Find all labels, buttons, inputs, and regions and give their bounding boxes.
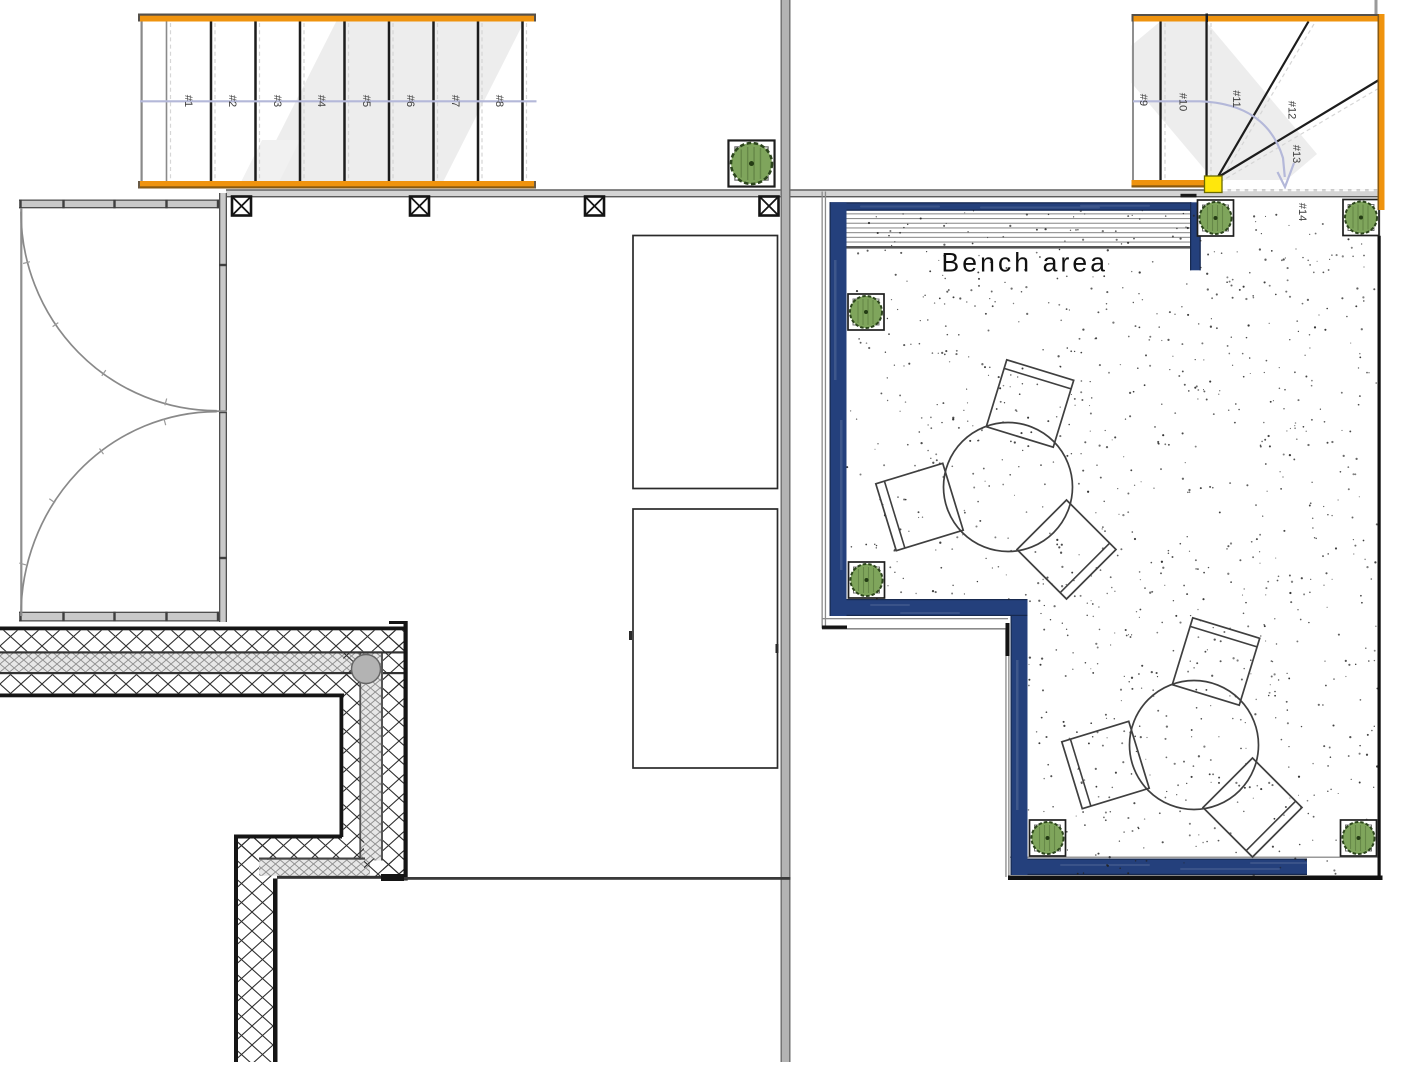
svg-text:#1: #1 <box>182 95 194 107</box>
svg-text:#14: #14 <box>1296 203 1308 221</box>
svg-text:Bench area: Bench area <box>942 248 1109 278</box>
svg-text:#13: #13 <box>1290 145 1302 163</box>
svg-text:#5: #5 <box>360 95 372 107</box>
svg-text:#6: #6 <box>404 95 416 107</box>
svg-text:#9: #9 <box>1137 94 1149 106</box>
svg-text:#10: #10 <box>1177 93 1189 111</box>
svg-text:#4: #4 <box>315 95 327 107</box>
svg-text:#12: #12 <box>1286 101 1298 119</box>
svg-text:#8: #8 <box>493 95 505 107</box>
svg-text:#11: #11 <box>1230 90 1242 108</box>
svg-text:#2: #2 <box>226 95 238 107</box>
svg-text:#7: #7 <box>449 95 461 107</box>
svg-text:#3: #3 <box>271 95 283 107</box>
